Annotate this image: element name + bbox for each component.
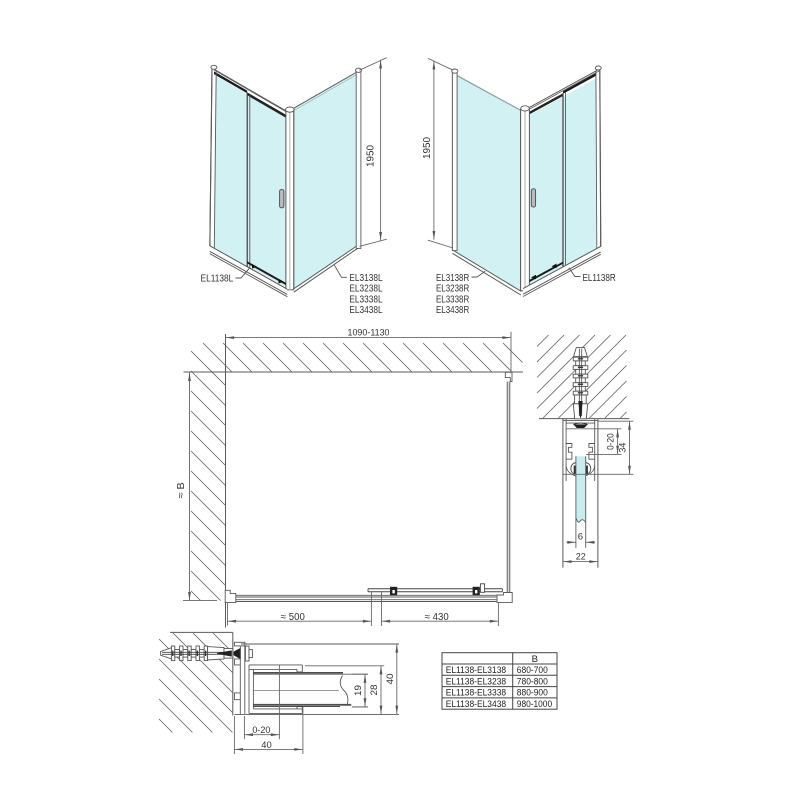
svg-text:EL3138L: EL3138L <box>349 273 383 284</box>
svg-text:≈ B: ≈ B <box>176 482 187 498</box>
svg-text:34: 34 <box>618 442 629 453</box>
svg-text:40: 40 <box>385 674 396 685</box>
svg-text:680-700: 680-700 <box>517 665 548 676</box>
svg-text:EL1138-EL3138: EL1138-EL3138 <box>446 665 506 676</box>
svg-text:EL3238L: EL3238L <box>349 284 383 295</box>
svg-text:6: 6 <box>578 532 583 543</box>
svg-text:1090-1130: 1090-1130 <box>348 328 390 339</box>
svg-text:28: 28 <box>369 685 380 696</box>
svg-text:EL3338L: EL3338L <box>349 294 383 305</box>
svg-text:EL1138-EL3338: EL1138-EL3338 <box>446 688 506 699</box>
svg-text:EL1138L: EL1138L <box>201 274 234 285</box>
svg-text:1950: 1950 <box>365 144 376 167</box>
svg-text:22: 22 <box>576 552 586 563</box>
svg-text:B: B <box>532 654 538 665</box>
svg-text:780-800: 780-800 <box>517 676 548 687</box>
svg-text:EL3338R: EL3338R <box>436 294 469 305</box>
svg-text:0-20: 0-20 <box>252 724 270 735</box>
svg-text:980-1000: 980-1000 <box>517 699 552 710</box>
svg-text:EL3138R: EL3138R <box>436 273 469 284</box>
svg-text:EL1138-EL3238: EL1138-EL3238 <box>446 676 506 687</box>
svg-text:EL3438R: EL3438R <box>436 305 469 316</box>
svg-text:1950: 1950 <box>422 136 433 159</box>
svg-text:19: 19 <box>353 685 364 696</box>
svg-text:≈ 500: ≈ 500 <box>281 612 305 623</box>
svg-text:EL1138R: EL1138R <box>583 273 616 284</box>
svg-text:0-20: 0-20 <box>606 433 617 450</box>
svg-text:≈ 430: ≈ 430 <box>425 612 449 623</box>
svg-text:EL1138-EL3438: EL1138-EL3438 <box>446 699 506 710</box>
svg-text:EL3438L: EL3438L <box>349 305 383 316</box>
svg-text:EL3238R: EL3238R <box>436 284 469 295</box>
svg-text:40: 40 <box>261 739 272 750</box>
svg-text:880-900: 880-900 <box>517 688 548 699</box>
